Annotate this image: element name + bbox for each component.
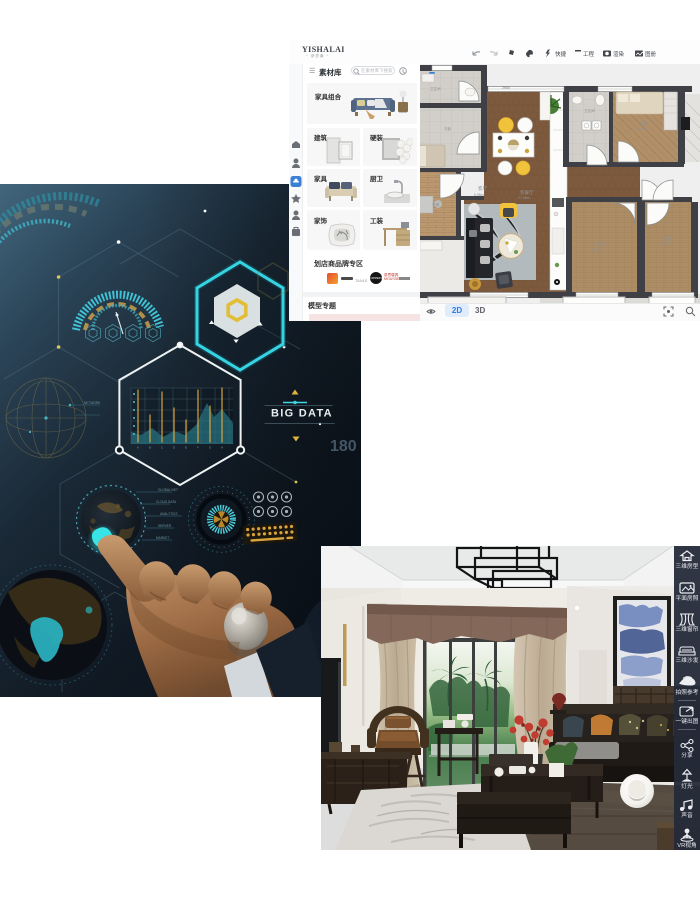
svg-text:180: 180 bbox=[330, 438, 357, 455]
svg-text:D: D bbox=[173, 446, 175, 450]
svg-text:卫生间: 卫生间 bbox=[584, 108, 595, 113]
svg-text:NETWORK: NETWORK bbox=[84, 401, 101, 405]
svg-text:图册: 图册 bbox=[645, 50, 657, 58]
svg-text:B: B bbox=[149, 446, 151, 450]
svg-text:MARKET: MARKET bbox=[156, 536, 169, 540]
svg-text:11.33m²: 11.33m² bbox=[592, 248, 605, 252]
svg-text:工程: 工程 bbox=[583, 50, 595, 58]
svg-text:SERVER: SERVER bbox=[158, 524, 172, 528]
svg-text:H: H bbox=[221, 446, 223, 450]
svg-text:G: G bbox=[209, 446, 211, 450]
svg-text:卫生间: 卫生间 bbox=[430, 86, 441, 91]
svg-text:E: E bbox=[185, 446, 187, 450]
svg-text:5.98m²: 5.98m² bbox=[474, 193, 485, 197]
svg-text:27.56m²: 27.56m² bbox=[518, 196, 531, 200]
svg-text:主卧: 主卧 bbox=[639, 120, 648, 127]
svg-text:9.80m²: 9.80m² bbox=[660, 242, 671, 246]
svg-text:GLOBAL NET: GLOBAL NET bbox=[158, 488, 178, 492]
svg-text:C: C bbox=[161, 446, 163, 450]
svg-text:A: A bbox=[137, 446, 139, 450]
svg-text:卧室: 卧室 bbox=[596, 241, 605, 248]
svg-text:快捷: 快捷 bbox=[555, 50, 567, 58]
svg-text:2900: 2900 bbox=[502, 86, 510, 90]
svg-text:次卧: 次卧 bbox=[444, 126, 452, 131]
svg-text:书房: 书房 bbox=[432, 202, 440, 207]
svg-text:BIG DATA: BIG DATA bbox=[271, 408, 333, 420]
svg-text:卧室: 卧室 bbox=[663, 235, 672, 242]
svg-text:13.65m²: 13.65m² bbox=[636, 127, 649, 131]
svg-text:客厅: 客厅 bbox=[478, 185, 487, 192]
svg-text:ANALYTICS: ANALYTICS bbox=[160, 512, 177, 516]
svg-text:客餐厅: 客餐厅 bbox=[520, 189, 534, 196]
svg-text:渲染: 渲染 bbox=[613, 50, 625, 58]
svg-text:CLOUD DATA: CLOUD DATA bbox=[156, 500, 177, 504]
